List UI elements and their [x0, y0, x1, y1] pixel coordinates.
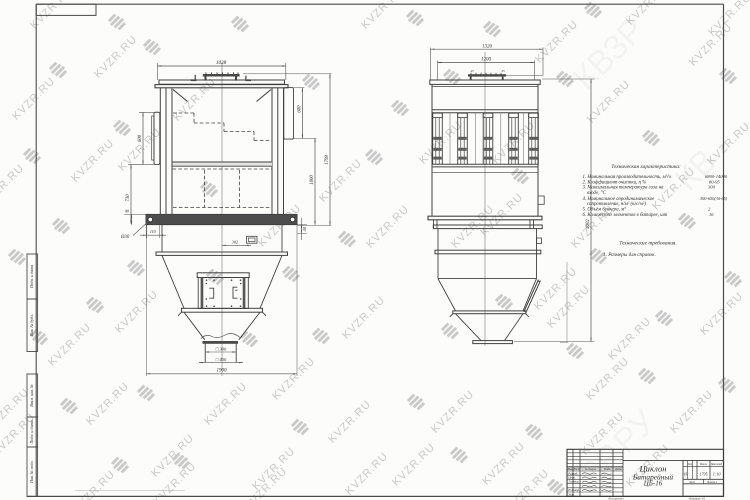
svg-text:Лист: Лист [688, 481, 695, 484]
svg-text:№ докум.: № докум. [584, 468, 596, 471]
svg-text:Дата: Дата [614, 468, 622, 471]
svg-text:730: 730 [126, 194, 131, 202]
svg-text:110: 110 [150, 229, 157, 234]
svg-text:Подп. и дата: Подп. и дата [29, 265, 34, 289]
svg-text:1. Размеры для справок.: 1. Размеры для справок. [603, 251, 656, 258]
svg-text:300-650(30-65): 300-650(30-65) [700, 196, 728, 201]
svg-text:Масса: Масса [699, 463, 708, 466]
svg-text:□ 300: □ 300 [216, 346, 227, 351]
svg-text:Утв.: Утв. [568, 492, 574, 496]
svg-text:2. Коэффициент очистки, η %: 2. Коэффициент очистки, η % [583, 180, 647, 185]
svg-text:6. Количество элементов в ба: 6. Количество элементов в батарее, шт [583, 213, 668, 218]
svg-text:Т.контр.: Т.контр. [568, 480, 579, 484]
svg-text:1200: 1200 [481, 58, 492, 63]
svg-text:Инв. № дубл.: Инв. № дубл. [29, 314, 34, 337]
svg-text:3. Максимальная температура: 3. Максимальная температура газа на [583, 186, 665, 191]
svg-text:300: 300 [708, 185, 716, 190]
svg-text:1326: 1326 [482, 44, 493, 49]
svg-text:1798: 1798 [325, 155, 330, 165]
svg-text:ЦБ-16: ЦБ-16 [643, 480, 663, 488]
svg-text:Лит.: Лит. [686, 463, 693, 466]
svg-text:600: 600 [298, 105, 303, 113]
svg-text:Взам. инв. №: Взам. инв. № [29, 384, 34, 407]
svg-text:Технические требования.: Технические требования. [619, 240, 677, 247]
svg-text:302: 302 [232, 240, 238, 245]
svg-text:1795: 1795 [700, 471, 708, 476]
svg-text:входе, °С: входе, °С [587, 191, 607, 196]
svg-text:Формат А1: Формат А1 [689, 497, 706, 500]
svg-text:Масштаб: Масштаб [710, 463, 723, 466]
svg-text:5. Объём бункера, м³: 5. Объём бункера, м³ [583, 207, 627, 213]
svg-text:80-95: 80-95 [709, 179, 720, 184]
svg-text:6800-14000: 6800-14000 [705, 174, 728, 179]
svg-text:И: И [683, 473, 687, 477]
svg-text:1438: 1438 [216, 59, 227, 66]
svg-text:Подп.: Подп. [603, 468, 611, 471]
svg-text:45: 45 [501, 69, 505, 73]
svg-text:□ 450: □ 450 [216, 357, 227, 362]
svg-text:1900: 1900 [217, 369, 228, 374]
svg-text:Техническая характеристика:: Техническая характеристика: [611, 164, 681, 170]
svg-text:600: 600 [138, 134, 143, 142]
svg-text:Подп. и дата: Подп. и дата [29, 420, 34, 444]
svg-text:Ø30: Ø30 [120, 235, 130, 240]
svg-text:Листов 1: Листов 1 [706, 481, 718, 484]
svg-text:Копировал: Копировал [607, 497, 624, 500]
svg-text:1:10: 1:10 [713, 471, 722, 476]
svg-text:1. Номинальная производительн: 1. Номинальная производительность, м³/ч [583, 174, 672, 180]
svg-text:16: 16 [709, 212, 714, 217]
svg-text:сопротивление, н/м² (кгс/м²): сопротивление, н/м² (кгс/м²) [587, 201, 646, 207]
svg-text:45: 45 [470, 69, 474, 73]
svg-text:Инв. № подл.: Инв. № подл. [29, 460, 34, 484]
svg-text:1000: 1000 [310, 175, 315, 185]
svg-text:4002: 4002 [586, 219, 591, 229]
